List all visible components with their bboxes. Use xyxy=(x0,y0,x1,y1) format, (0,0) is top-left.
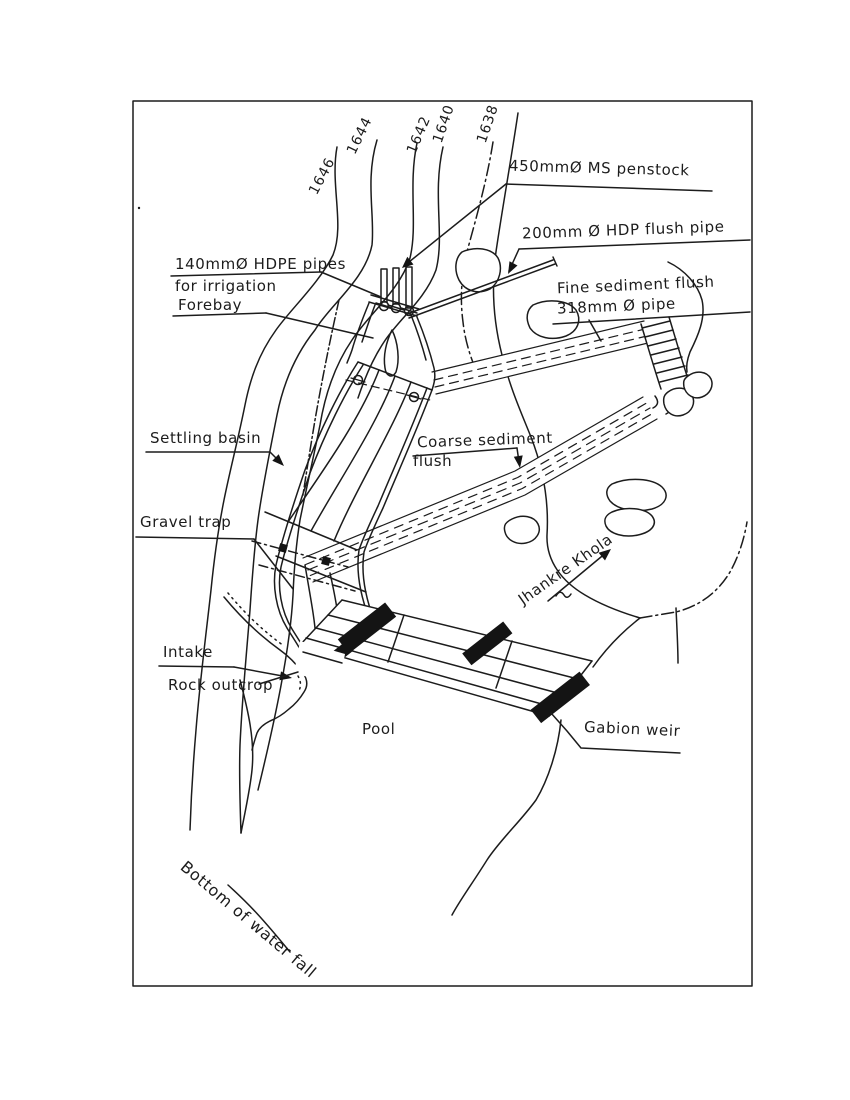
river-lines xyxy=(228,113,747,952)
label-hdpe-pipes: 140mmØ HDPE pipes xyxy=(175,255,346,273)
label-rock-outcrop: Rock outcrop xyxy=(168,676,273,694)
label-coarse-flush: flush xyxy=(413,452,452,470)
label-intake: Intake xyxy=(163,643,213,661)
label-pool: Pool xyxy=(362,720,395,738)
label-for-irrigation: for irrigation xyxy=(175,277,277,295)
label-forebay: Forebay xyxy=(178,296,242,314)
label-settling-basin: Settling basin xyxy=(150,429,261,447)
site-plan-drawing xyxy=(0,0,850,1100)
label-gravel-trap: Gravel trap xyxy=(140,513,231,531)
scanned-plan-page: 1646 1644 1642 1640 1638 450mmØ MS penst… xyxy=(0,0,850,1100)
contour-lines xyxy=(190,140,493,833)
gabion-weir xyxy=(300,600,592,723)
